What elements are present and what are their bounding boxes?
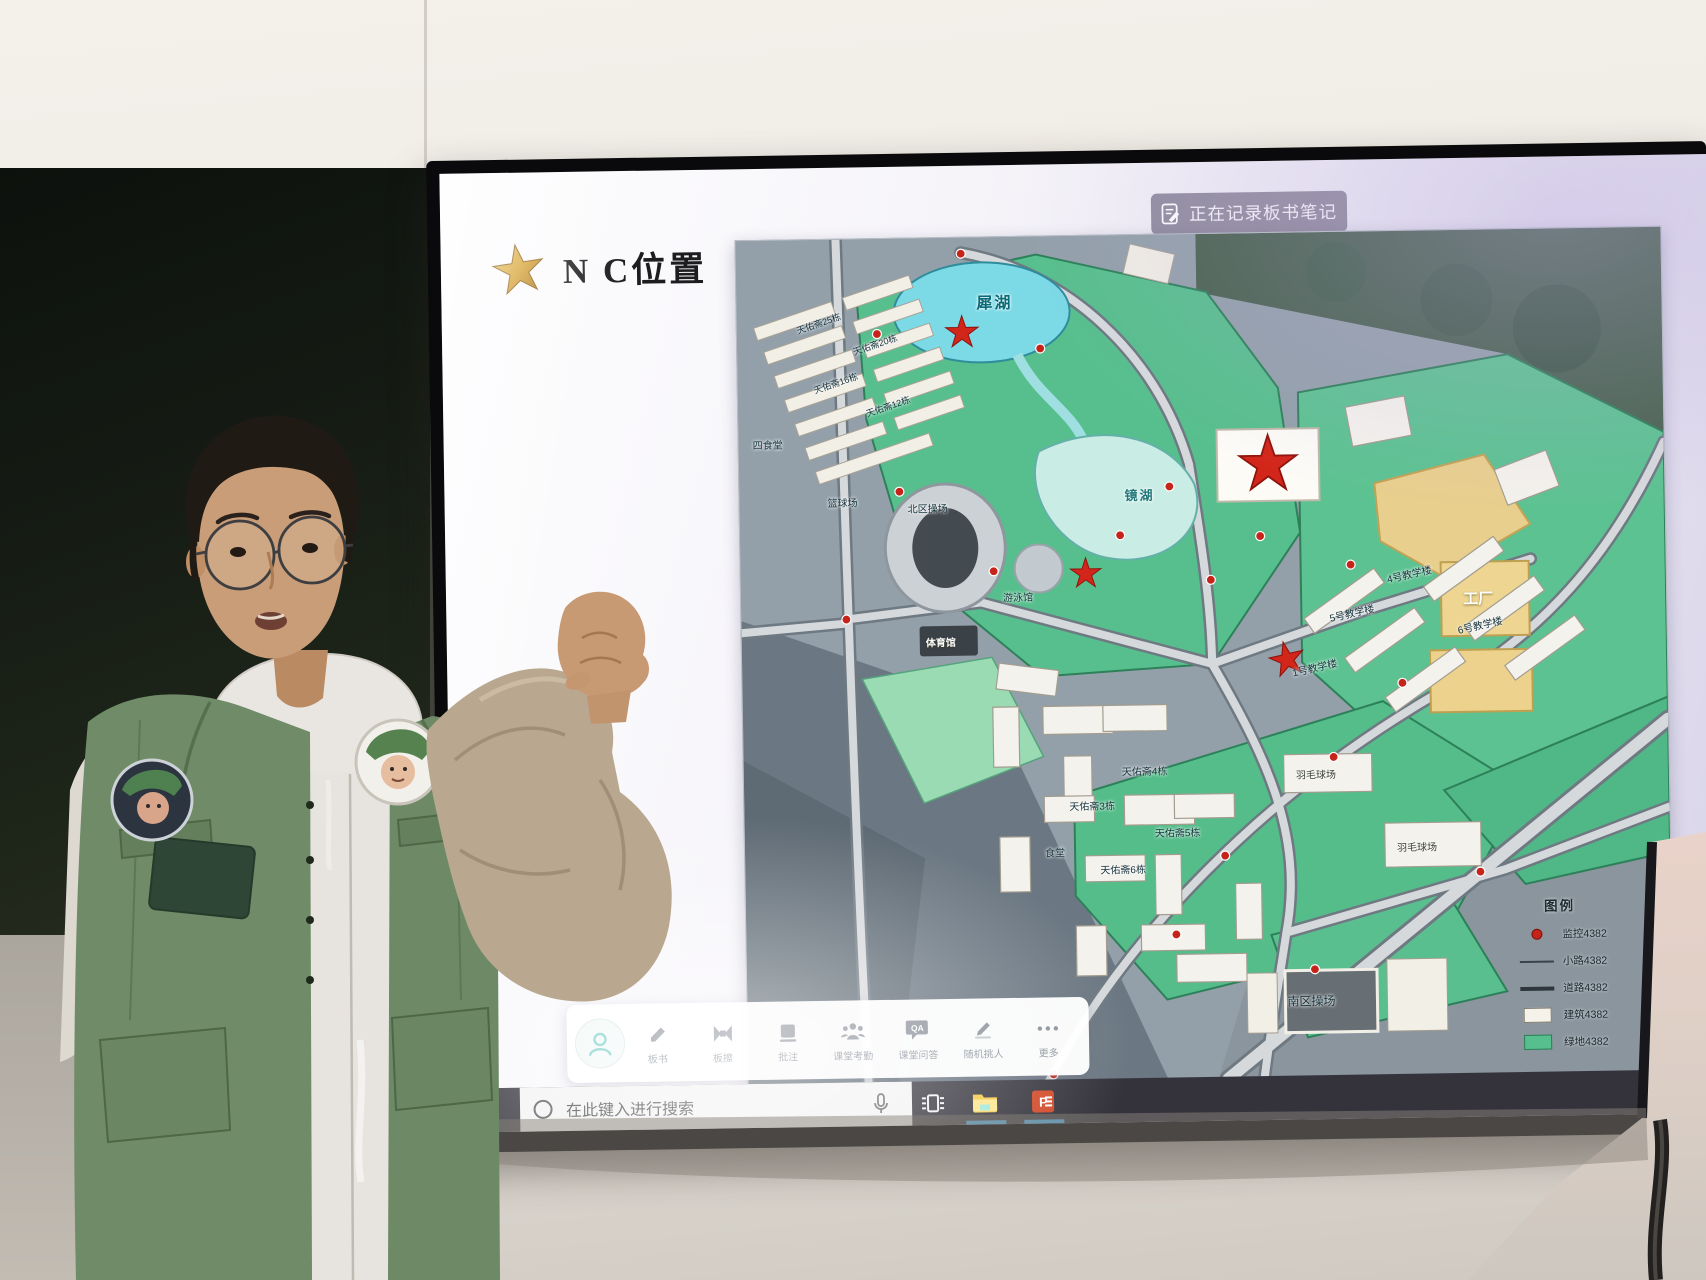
- wall-corner-seam: [424, 0, 427, 170]
- map-label: 羽毛球场: [1296, 766, 1336, 782]
- map-label: 北区操场: [908, 500, 948, 516]
- task-view-icon[interactable]: [910, 1081, 957, 1126]
- building-box-swatch: [1520, 1007, 1556, 1023]
- presenter: [60, 400, 700, 1280]
- note-edit-icon: [1161, 202, 1180, 226]
- map-label: 体育馆: [926, 634, 956, 649]
- people-icon: [840, 1016, 866, 1042]
- classroom-photo: N C位置 正在记录板书笔记: [0, 0, 1706, 1280]
- map-legend: 图例 监控4382 小路4382 道路4382 建筑4382: [1518, 893, 1667, 1056]
- map-label-factory: 工厂: [1463, 587, 1493, 608]
- qa-icon: QA: [905, 1015, 931, 1041]
- map-label: 羽毛球场: [1397, 838, 1437, 854]
- vest-badge: [356, 720, 440, 804]
- map-label: 天佑斋5栋: [1155, 824, 1201, 840]
- microphone-icon[interactable]: [858, 1082, 905, 1127]
- slide-title-text: N C位置: [562, 240, 707, 293]
- map-label: 犀湖: [976, 289, 1012, 314]
- map-label: 天佑斋6栋: [1100, 861, 1146, 877]
- toolbar-item-pizhu[interactable]: 批注: [755, 1017, 821, 1064]
- legend-row: 小路4382: [1519, 946, 1665, 975]
- map-label: 篮球场: [827, 494, 857, 509]
- running-app-indicator: [966, 1120, 1006, 1125]
- map-label: 游泳馆: [1003, 589, 1033, 604]
- vest-badge: [112, 760, 192, 840]
- powerpoint-icon[interactable]: P: [1020, 1079, 1067, 1124]
- thick-line-swatch: [1519, 986, 1555, 991]
- map-label: 南区操场: [1287, 992, 1335, 1010]
- slide-title: N C位置: [490, 238, 707, 297]
- recording-notification: 正在记录板书笔记: [1151, 191, 1348, 235]
- toolbar-item-wenda[interactable]: QA 课堂问答: [885, 1015, 951, 1062]
- toolbar-item-tiaoren[interactable]: 随机挑人: [950, 1014, 1016, 1061]
- map-label: 食堂: [1045, 844, 1065, 859]
- map-label: 天佑斋4栋: [1122, 763, 1168, 779]
- more-icon: [1036, 1013, 1060, 1039]
- campus-map: 犀湖 镜湖 篮球场 北区操场 游泳馆 体育馆 四食堂 天佑斋25栋 天佑斋20栋…: [734, 226, 1674, 1087]
- map-label: 镜湖: [1124, 485, 1154, 504]
- legend-row: 建筑4382: [1520, 1000, 1666, 1029]
- toolbar-item-kaoqin[interactable]: 课堂考勤: [820, 1016, 886, 1063]
- legend-title: 图例: [1544, 893, 1664, 915]
- svg-text:QA: QA: [911, 1023, 924, 1033]
- eraser-icon: [710, 1018, 734, 1044]
- green-box-swatch: [1520, 1034, 1556, 1050]
- map-label: 天佑斋3栋: [1069, 797, 1115, 813]
- thin-line-swatch: [1519, 960, 1555, 963]
- toolbar-item-more[interactable]: 更多: [1015, 1013, 1081, 1060]
- camera-dot-swatch: [1518, 928, 1554, 940]
- legend-row: 监控4382: [1518, 919, 1664, 948]
- vest-patch: [149, 837, 256, 919]
- legend-row: 道路4382: [1519, 973, 1665, 1002]
- recording-notification-text: 正在记录板书笔记: [1189, 199, 1337, 226]
- pencil-icon: [972, 1014, 994, 1040]
- board-icon: [776, 1017, 798, 1043]
- legend-row: 绿地4382: [1520, 1027, 1666, 1056]
- file-explorer-icon[interactable]: [962, 1080, 1009, 1125]
- map-label: 四食堂: [753, 437, 783, 452]
- gold-star-icon: [490, 240, 547, 297]
- running-app-indicator: [1024, 1119, 1064, 1124]
